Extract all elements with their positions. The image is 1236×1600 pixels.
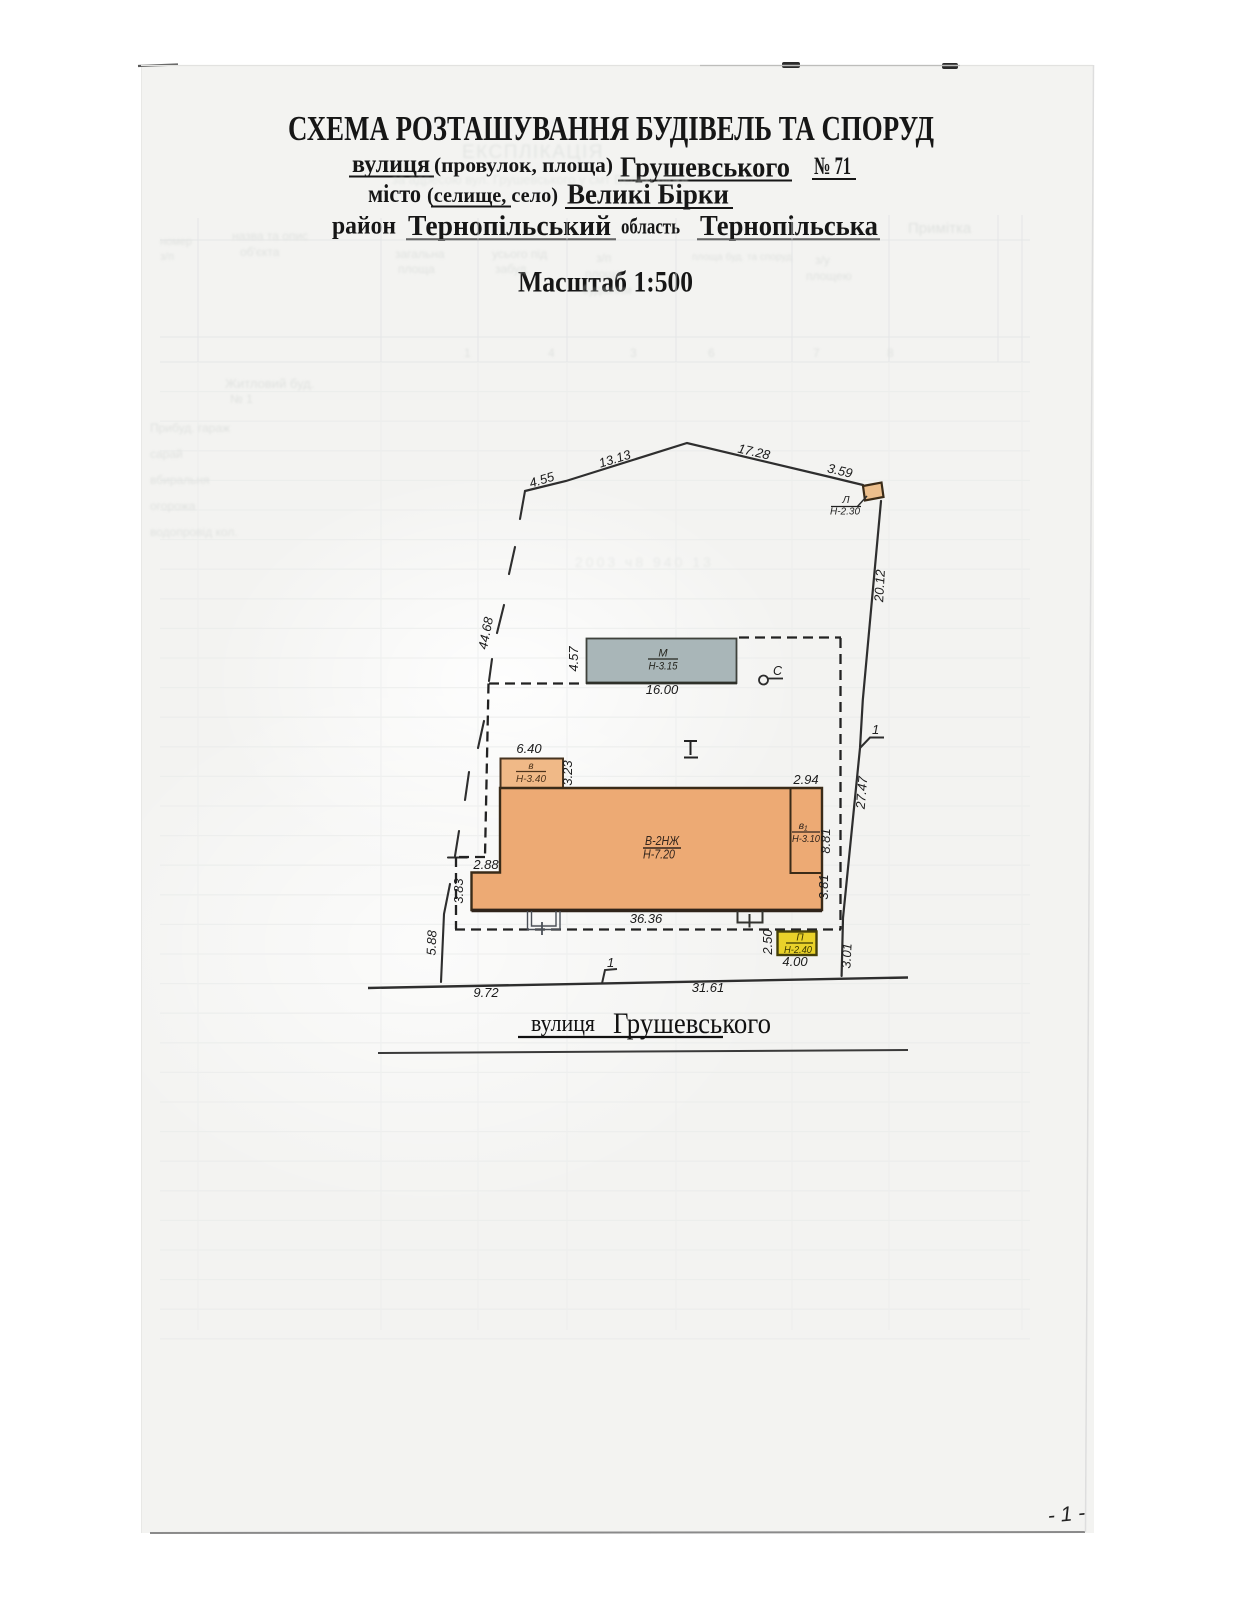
svg-text:за адресою вул. Грушевського у: за адресою вул. Грушевського у смт Велик… — [392, 172, 688, 187]
svg-text:6: 6 — [708, 346, 715, 360]
svg-text:будівлям: будівлям — [582, 283, 632, 297]
svg-text:16.00: 16.00 — [646, 682, 679, 697]
svg-text:площею: площею — [806, 269, 852, 283]
svg-text:сарай: сарай — [150, 447, 183, 461]
svg-text:С: С — [773, 664, 783, 678]
svg-text:Житловий буд.: Житловий буд. — [225, 376, 314, 391]
svg-text:вулиця: вулиця — [531, 1011, 595, 1037]
svg-text:номер: номер — [160, 236, 192, 248]
svg-text:4.57: 4.57 — [566, 646, 581, 672]
svg-text:27.47: 27.47 — [853, 775, 871, 810]
svg-text:1: 1 — [607, 955, 614, 970]
svg-text:з/п: з/п — [596, 251, 611, 265]
svg-text:3.01: 3.01 — [838, 943, 854, 969]
svg-text:3.23: 3.23 — [560, 760, 575, 786]
svg-text:31.61: 31.61 — [692, 980, 725, 995]
svg-text:огорожа: огорожа — [150, 499, 196, 513]
svg-text:площа буд. та споруд: площа буд. та споруд — [692, 251, 792, 263]
svg-text:об'єкта: об'єкта — [240, 245, 280, 259]
svg-text:20.12: 20.12 — [871, 568, 888, 603]
svg-text:Прибуд. гараж: Прибуд. гараж — [150, 421, 230, 435]
svg-text:№ 1: № 1 — [230, 392, 253, 406]
svg-text:4.00: 4.00 — [782, 954, 808, 969]
svg-text:в: в — [528, 761, 533, 772]
svg-text:Л: Л — [841, 494, 850, 506]
svg-text:1: 1 — [464, 346, 471, 360]
svg-text:водопровід кол.: водопровід кол. — [150, 525, 238, 539]
svg-text:Примітка: Примітка — [908, 220, 972, 237]
svg-text:В-2НЖ: В-2НЖ — [645, 834, 680, 848]
svg-text:4: 4 — [548, 346, 555, 360]
svg-text:ЕКСПЛІКАЦІЯ: ЕКСПЛІКАЦІЯ — [462, 142, 604, 163]
svg-text:Грушевського: Грушевського — [613, 1007, 771, 1040]
svg-text:3: 3 — [630, 346, 637, 360]
svg-text:4.55: 4.55 — [527, 469, 556, 491]
svg-text:Н-3.15: Н-3.15 — [649, 661, 679, 673]
svg-text:Н-3.40: Н-3.40 — [516, 774, 546, 785]
svg-text:Н-7.20: Н-7.20 — [643, 848, 675, 862]
svg-text:8.81: 8.81 — [818, 828, 833, 853]
svg-text:9.72: 9.72 — [473, 985, 499, 1000]
svg-text:М: М — [658, 648, 668, 660]
svg-text:6.40: 6.40 — [516, 741, 542, 756]
svg-text:5.88: 5.88 — [424, 929, 440, 956]
svg-text:7: 7 — [813, 346, 820, 360]
svg-text:площа: площа — [585, 267, 622, 281]
svg-text:загальна: загальна — [395, 247, 445, 261]
svg-text:з/у: з/у — [815, 253, 830, 267]
svg-text:назва та опис: назва та опис — [232, 229, 308, 243]
svg-text:2.94: 2.94 — [792, 772, 818, 787]
svg-text:8: 8 — [887, 346, 894, 360]
svg-text:2003 ч8 940 13: 2003 ч8 940 13 — [575, 554, 714, 570]
svg-text:1: 1 — [872, 722, 879, 737]
svg-text:2.88: 2.88 — [472, 857, 499, 872]
svg-text:- 1 -: - 1 - — [1047, 1501, 1086, 1527]
svg-text:в₁: в₁ — [799, 820, 808, 832]
svg-text:36.36: 36.36 — [630, 911, 663, 926]
svg-text:П: П — [796, 933, 804, 944]
svg-text:3.83: 3.83 — [451, 878, 466, 904]
svg-text:усього під: усього під — [492, 247, 547, 261]
svg-text:Н-2.30: Н-2.30 — [830, 506, 860, 518]
svg-text:вбиральня: вбиральня — [150, 473, 210, 487]
svg-text:3.81: 3.81 — [816, 874, 831, 899]
svg-text:забуд.: забуд. — [495, 262, 530, 276]
svg-text:з/п: з/п — [160, 251, 174, 263]
svg-text:2.50: 2.50 — [760, 929, 775, 956]
svg-text:Н-3.10: Н-3.10 — [792, 833, 820, 845]
svg-text:площа: площа — [398, 262, 435, 276]
